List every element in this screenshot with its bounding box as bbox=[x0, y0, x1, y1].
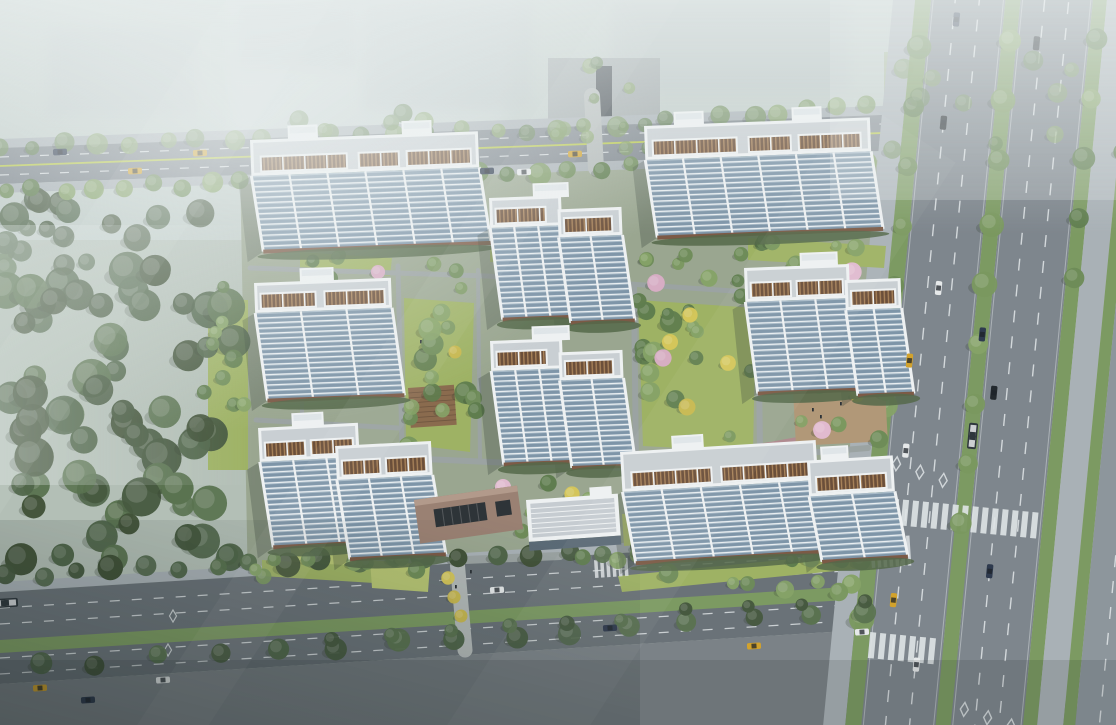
car bbox=[986, 564, 994, 579]
car bbox=[890, 593, 898, 608]
roof-pergola bbox=[386, 456, 427, 473]
car bbox=[990, 386, 998, 401]
roof-pergola bbox=[265, 441, 306, 458]
pedestrian bbox=[812, 408, 814, 411]
car bbox=[855, 628, 869, 635]
pedestrian bbox=[820, 415, 822, 418]
car bbox=[906, 353, 914, 368]
aerial-render-canvas bbox=[0, 0, 1116, 725]
roof-pergola bbox=[816, 473, 887, 492]
car bbox=[747, 642, 761, 649]
car bbox=[935, 281, 943, 296]
pedestrian bbox=[840, 402, 842, 405]
car bbox=[978, 327, 986, 342]
scene-svg bbox=[0, 0, 1116, 725]
car bbox=[902, 443, 910, 458]
